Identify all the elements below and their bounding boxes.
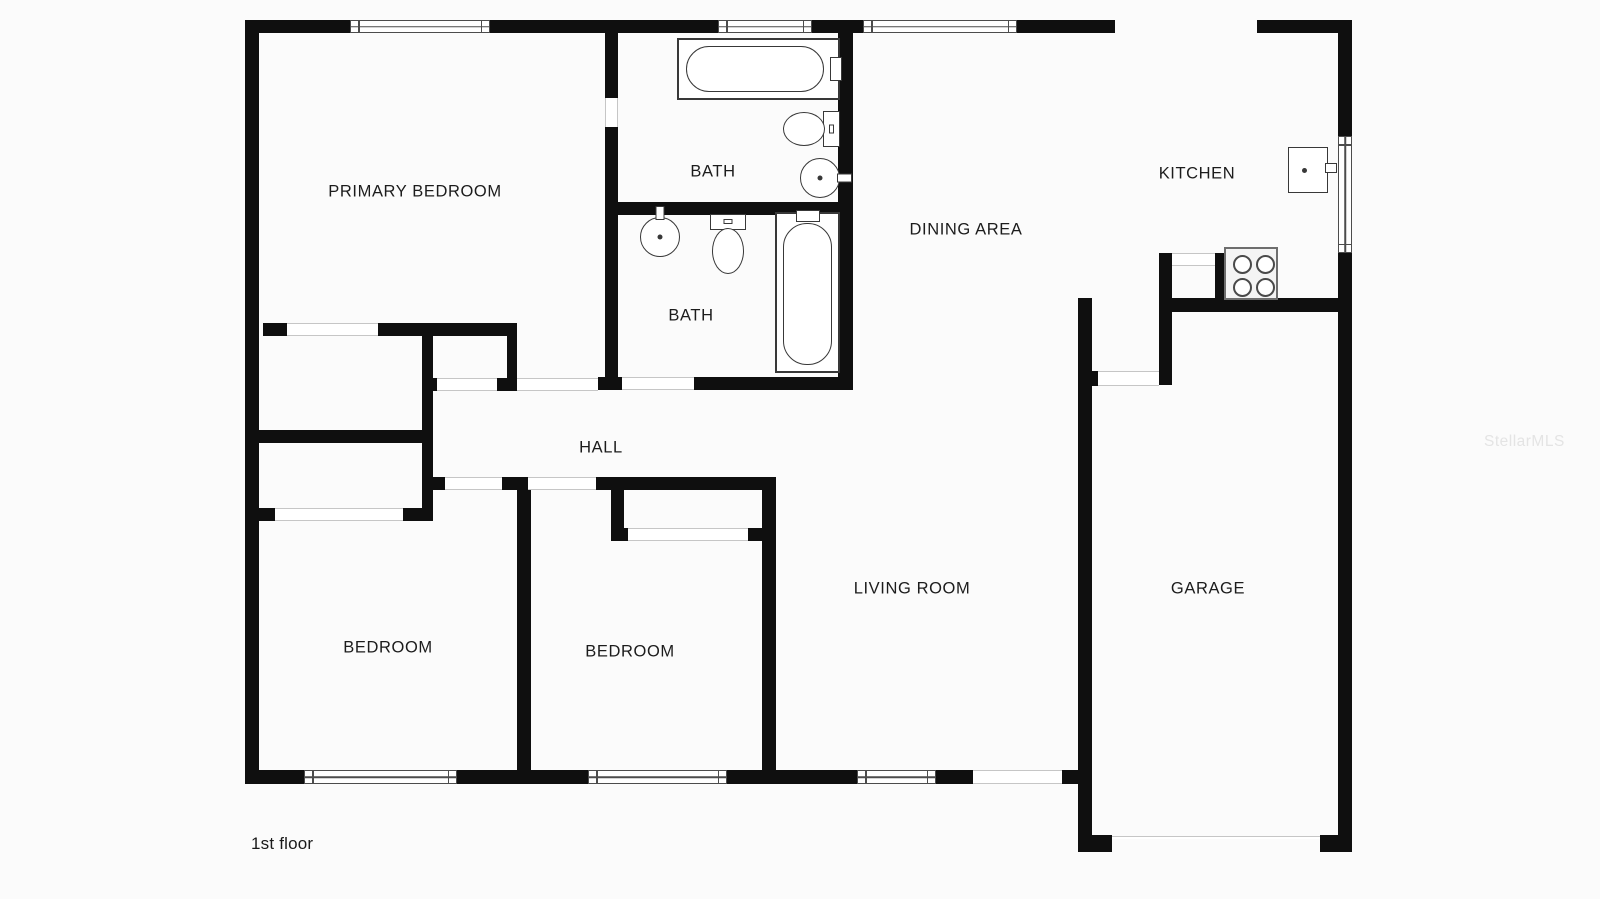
door-opening (275, 508, 403, 521)
wall-segment (727, 770, 857, 784)
door-opening (445, 477, 502, 490)
room-label-bedroom-1: BEDROOM (343, 639, 432, 658)
wall-segment (1159, 298, 1338, 312)
wall-segment (263, 323, 287, 336)
wall-segment (598, 377, 622, 390)
window (1338, 136, 1352, 253)
wall-segment (605, 20, 618, 98)
wall-segment (1320, 835, 1352, 852)
stove-icon (1224, 247, 1278, 300)
sink-icon (800, 158, 840, 198)
wall-segment (432, 477, 445, 490)
wall-segment (507, 323, 517, 378)
door-opening (1172, 253, 1215, 266)
wall-segment (1017, 20, 1115, 33)
wall-segment (422, 323, 433, 521)
wall-segment (1062, 770, 1078, 784)
room-label-kitchen: KITCHEN (1159, 165, 1236, 184)
door-opening (628, 528, 748, 541)
window (718, 20, 812, 33)
toilet-icon (783, 110, 840, 148)
room-label-living-room: LIVING ROOM (854, 580, 971, 599)
window (350, 20, 490, 33)
garage-door (1112, 836, 1320, 839)
door-opening (517, 378, 598, 391)
wall-segment (403, 508, 432, 521)
wall-segment (605, 127, 618, 390)
wall-segment (245, 20, 350, 33)
wall-segment (259, 430, 432, 443)
wall-segment (497, 378, 517, 391)
window (863, 20, 1017, 33)
room-label-garage: GARAGE (1171, 580, 1245, 599)
toilet-icon (710, 214, 746, 274)
floor-label: 1st floor (251, 834, 313, 854)
door-opening (287, 323, 378, 336)
door-opening (973, 770, 1062, 784)
watermark: StellarMLS (1484, 433, 1565, 451)
wall-segment (748, 528, 762, 541)
door-opening (1098, 371, 1159, 386)
room-label-bath-2: BATH (668, 307, 713, 326)
wall-segment (490, 20, 718, 33)
window (588, 770, 727, 784)
wall-segment (378, 323, 517, 336)
room-label-primary-bedroom: PRIMARY BEDROOM (328, 183, 501, 202)
sink-icon (640, 217, 680, 257)
wall-segment (517, 490, 531, 770)
refrigerator-icon (1288, 147, 1328, 193)
wall-segment (457, 770, 588, 784)
wall-segment (245, 770, 304, 784)
room-label-bath-1: BATH (690, 163, 735, 182)
door-opening (437, 378, 497, 391)
wall-segment (596, 477, 772, 490)
room-label-bedroom-2: BEDROOM (585, 643, 674, 662)
door-opening (605, 98, 618, 127)
room-label-dining-area: DINING AREA (910, 221, 1023, 240)
wall-segment (838, 33, 853, 390)
wall-segment (259, 508, 275, 521)
window (304, 770, 457, 784)
door-opening (528, 477, 596, 490)
wall-segment (611, 490, 624, 528)
window (857, 770, 936, 784)
wall-segment (812, 20, 863, 33)
wall-segment (762, 477, 776, 770)
wall-segment (694, 377, 838, 390)
wall-segment (1159, 253, 1172, 385)
wall-segment (1338, 20, 1352, 136)
bathtub-icon (677, 38, 840, 100)
bathtub-icon (775, 212, 840, 373)
wall-segment (1338, 253, 1352, 835)
wall-segment (1078, 298, 1092, 852)
floor-plan-canvas: 1st floor StellarMLS PRIMARY BEDROOMBATH… (0, 0, 1600, 899)
door-opening (622, 377, 694, 390)
wall-segment (245, 20, 259, 770)
wall-segment (422, 378, 437, 391)
wall-segment (502, 477, 528, 490)
room-label-hall: HALL (579, 439, 623, 458)
wall-segment (611, 528, 628, 541)
wall-segment (936, 770, 973, 784)
